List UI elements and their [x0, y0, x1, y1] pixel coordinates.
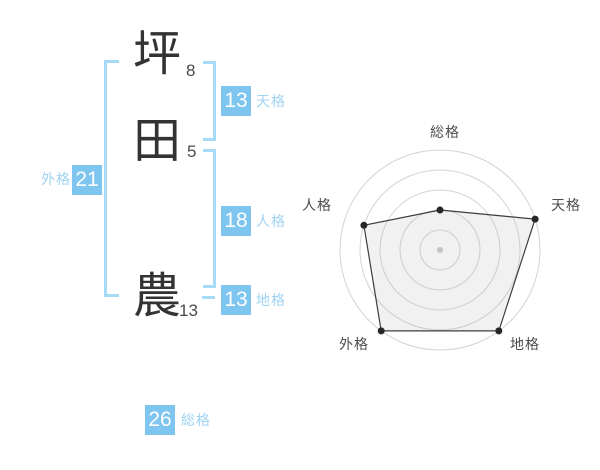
gaikaku-value-box: 21: [72, 165, 102, 195]
radar-axis-label-chikaku: 地格: [510, 337, 540, 352]
jinkaku-value-box: 18: [221, 206, 251, 236]
radar-chart: [330, 140, 550, 360]
tenkaku-label: 天格: [256, 94, 286, 109]
radar-axis-label-gaikaku: 外格: [339, 337, 369, 352]
chikaku-tick: [202, 296, 215, 299]
name-char-1: 坪: [133, 31, 181, 79]
chikaku-value-box: 13: [221, 285, 251, 315]
jinkaku-bracket: [203, 149, 216, 288]
stroke-count-char-3: 13: [179, 302, 198, 320]
stroke-count-char-1: 8: [186, 62, 195, 80]
chikaku-label: 地格: [256, 293, 286, 308]
tenkaku-bracket: [203, 61, 216, 141]
stroke-count-char-2: 5: [187, 143, 196, 161]
tenkaku-value-box: 13: [221, 86, 251, 116]
soukaku-label: 総格: [181, 413, 211, 428]
seimei-handan-panel: 坪 田 農 8 5 13 13 天格 18 人格 13 地格 21 外格 26 …: [0, 0, 600, 470]
radar-axis-label-jinkaku: 人格: [302, 198, 332, 213]
name-char-3: 農: [133, 273, 181, 321]
jinkaku-label: 人格: [256, 214, 286, 229]
name-char-2: 田: [133, 118, 181, 166]
radar-axis-label-soukaku: 総格: [430, 125, 460, 140]
soukaku-value-box: 26: [145, 405, 175, 435]
gaikaku-label: 外格: [41, 172, 71, 187]
gaikaku-bracket: [104, 60, 119, 297]
radar-axis-label-tenkaku: 天格: [551, 198, 581, 213]
